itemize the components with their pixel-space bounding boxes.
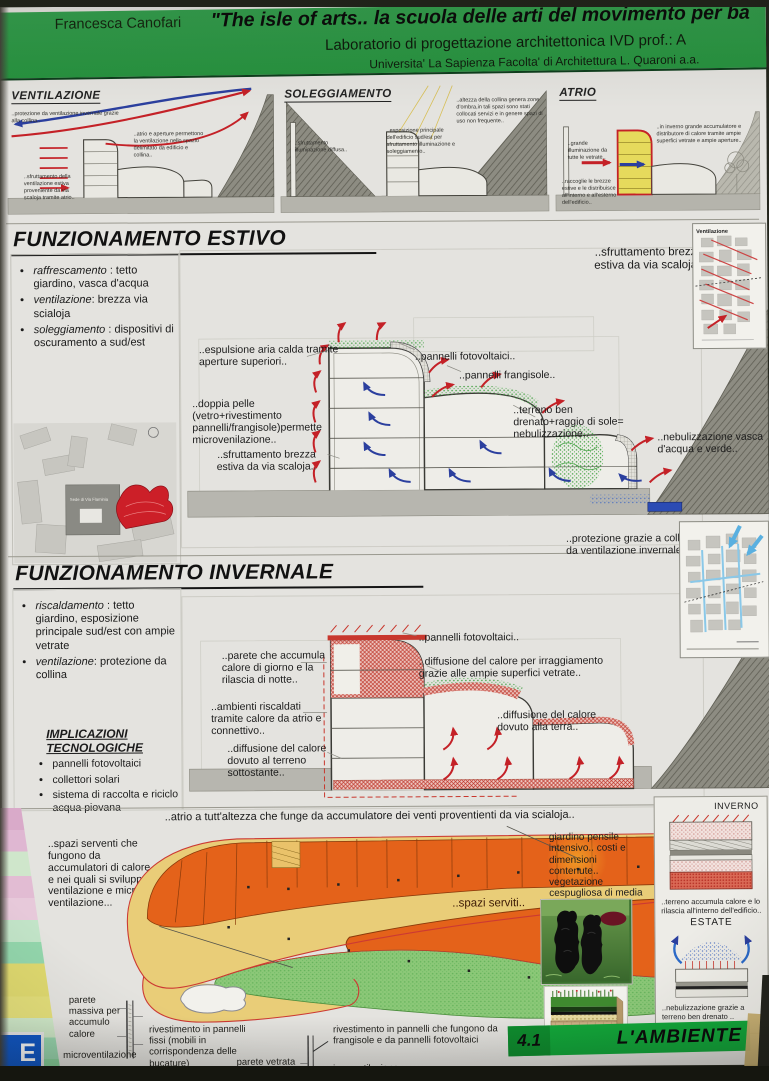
inverno-diagram	[665, 813, 757, 896]
invernale-left-column: riscaldamento : tetto giardino, esposizi…	[12, 588, 182, 811]
implicazioni-title: IMPLICAZIONI TECNOLOGICHE	[46, 727, 156, 755]
panel-title: SOLEGGIAMENTO	[284, 88, 391, 103]
label-rivestimento-frangisole: rivestimento in pannelli che fungono da …	[333, 1023, 503, 1046]
label-parete-massiva: parete massiva per accumulo calore	[69, 995, 121, 1040]
impl-item: sistema di raccolta e riciclo acqua piov…	[53, 788, 182, 814]
sculpture-photo-figure	[541, 900, 629, 983]
atrio-note-bottom: ..raccoglie le brezze estive e le distri…	[562, 179, 626, 207]
sole-note-left: ..sfruttamento illuminazione diffusa..	[295, 140, 351, 154]
sole-note-right: ..altezza della collina genera zone d'om…	[456, 97, 544, 125]
ann-terreno: ..terreno ben drenato+raggio di sole= ne…	[513, 404, 641, 440]
seasons-box: INVERNO ..terreno accumula calore e lo r…	[654, 796, 769, 1035]
footer-bar: 4.1 L'AMBIENTE	[508, 1021, 751, 1057]
ann-diffusione-terra: ..diffusione del calore dovuto alla terr…	[497, 710, 625, 735]
vent-note-center: ..atrio e aperture permettono la ventila…	[134, 131, 204, 159]
site-map: Sede di Via Flaminia	[13, 422, 177, 563]
ann-espulsione: ..espulsione aria calda tramite aperture…	[199, 344, 354, 369]
minimap-inverno-figure	[680, 522, 767, 656]
ann-doppia-pelle: ..doppia pelle (vetro+rivestimento panne…	[192, 398, 344, 446]
label-microventilazione-right: microventilazione	[325, 1063, 435, 1075]
vent-note-left: ..protezione da ventilazione invernale g…	[11, 111, 123, 125]
sede-block: Sede di Via Flaminia	[66, 485, 120, 535]
sheet-number: 4.1	[508, 1025, 551, 1056]
minimap-venti-invernali	[679, 521, 769, 659]
ann-frangisole: ..pannelli frangisole..	[459, 370, 589, 383]
panel-title: ATRIO	[559, 87, 596, 101]
estate-label: ESTATE	[655, 917, 767, 929]
bullet-raffrescamento: raffrescamento : tetto giardino, vasca d…	[33, 264, 174, 291]
pond	[181, 984, 246, 1013]
project-title: "The isle of arts.. la scuola delle arti…	[210, 2, 749, 33]
panel-title: VENTILAZIONE	[11, 90, 100, 105]
impl-item: pannelli fotovoltaici	[52, 757, 181, 770]
course-line: Laboratorio di progettazione architetton…	[325, 31, 686, 53]
bullet-ventilazione-inv: ventilazione: protezione da collina	[36, 655, 177, 682]
vent-note-bottom: ..sfruttamento della ventilazione estiva…	[24, 174, 86, 202]
poster-sheet: Francesca Canofari "The isle of arts.. l…	[0, 3, 769, 1070]
minimap-ventilazione: Ventilazione	[692, 223, 767, 349]
ann-diffusione-terreno: ..diffusione del calore dovuto al terren…	[227, 743, 349, 779]
ann-fotovoltaici-estivo: ..pannelli fotovoltaici..	[415, 351, 565, 364]
inverno-label: INVERNO	[655, 797, 767, 812]
sede-label: Sede di Via Flaminia	[70, 497, 109, 502]
footer-label: L'AMBIENTE	[550, 1025, 750, 1052]
ann-parete-accumula: ..parete che accumula calore di giorno e…	[222, 650, 346, 686]
inverno-caption: ..terreno accumula calore e lo rilascia …	[661, 897, 761, 916]
masking-tape	[744, 1013, 769, 1071]
ann-brezza: ..sfruttamento brezza estiva da via scal…	[202, 449, 330, 474]
corner-logo: E	[0, 1032, 44, 1074]
ann-ambienti-riscaldati: ..ambienti riscaldati tramite calore da …	[211, 701, 331, 737]
panel-atrio: ATRIO ..grande illuminazione da tutte le…	[553, 82, 762, 221]
svg-text:Ventilazione: Ventilazione	[696, 229, 728, 235]
panel-ventilazione: VENTILAZIONE ..protezione da ventilazion…	[5, 85, 276, 225]
impl-item: collettori solari	[52, 773, 181, 786]
invernale-title: FUNZIONAMENTO INVERNALE	[13, 560, 423, 591]
poster-photo: Francesca Canofari "The isle of arts.. l…	[0, 0, 769, 1081]
panel-soleggiamento: SOLEGGIAMENTO ..sfruttamento illuminazio…	[278, 83, 551, 223]
author-name: Francesca Canofari	[55, 15, 182, 33]
water-basin	[648, 502, 682, 511]
atrio-note-right: ..in inverno grande accumulatore e distr…	[656, 124, 754, 145]
atrio-note-left: ..grande illuminazione da tutte le vetra…	[568, 141, 616, 162]
minimap-ventilazione-figure: Ventilazione	[693, 224, 764, 346]
university-line: Universita' La Sapienza Facolta' di Arch…	[369, 52, 699, 71]
ann-atrio-accumulatore: ..atrio a tutt'altezza che funge da accu…	[165, 809, 605, 824]
ann-nebulizzazione: ..nebulizzazione vasca d'acqua e verde..	[657, 432, 763, 456]
bullet-soleggiamento: soleggiamento : dispositivi di oscuramen…	[34, 323, 175, 350]
photo-grass-sculptures	[540, 898, 633, 985]
sole-note-center: ..esposizione principale dell'edificio s…	[387, 128, 463, 156]
header-banner: Francesca Canofari "The isle of arts.. l…	[0, 1, 766, 80]
label-parete-vetrata: parete vetrata	[203, 1057, 295, 1069]
ann-fotovoltaici-inv: ..pannelli fotovoltaici..	[419, 632, 549, 645]
estivo-bullets: raffrescamento : tetto giardino, vasca d…	[11, 254, 179, 350]
bullet-ventilazione: ventilazione: brezza via scialoja	[34, 294, 175, 321]
estivo-left-column: raffrescamento : tetto giardino, vasca d…	[10, 253, 181, 565]
ann-diffusione-vetrate: ..diffusione del calore per irraggiament…	[419, 656, 609, 681]
invernale-bullets: riscaldamento : tetto giardino, esposizi…	[13, 589, 181, 682]
estate-diagram	[665, 929, 757, 1002]
bullet-riscaldamento: riscaldamento : tetto giardino, esposizi…	[35, 599, 176, 653]
